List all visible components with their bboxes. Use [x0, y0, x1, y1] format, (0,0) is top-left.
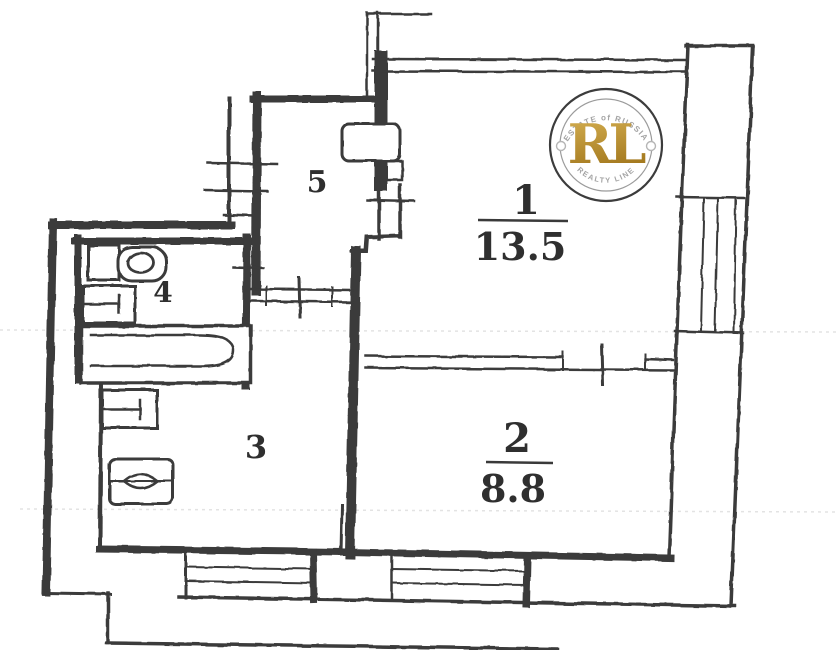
- room-2-number: 2: [503, 415, 531, 462]
- room-2-fraction-line: [486, 462, 553, 463]
- loggia-glazing-1: [701, 198, 704, 331]
- tick-kitchen-shaft: [367, 200, 414, 201]
- wall-room12-upper-right: [645, 359, 673, 360]
- window-left-glazing-2: [186, 581, 314, 583]
- door12-leaf-tick: [602, 345, 603, 385]
- room-1-label: 1 13.5: [474, 177, 568, 269]
- floor-plan-svg: 1 13.5 2 8.8 3 4 5 ESTATE of RUSSIA REAL…: [0, 0, 837, 650]
- wall-kitchen-left: [256, 96, 257, 291]
- room-2-label: 2 8.8: [480, 415, 553, 511]
- realty-logo: ESTATE of RUSSIA REALTY LINE RL: [550, 89, 662, 201]
- wall-left-exterior: [46, 222, 53, 592]
- wall-bottom-outer: [179, 597, 735, 606]
- room-2-area: 8.8: [480, 466, 546, 511]
- logo-initials: RL: [568, 112, 646, 176]
- wall-corridor-rooms: [350, 251, 356, 554]
- scan-streak-2: [20, 509, 837, 512]
- wall-room1-top-outer: [373, 59, 687, 60]
- loggia-glazing-2: [715, 198, 718, 331]
- floor-plan-page: 1 13.5 2 8.8 3 4 5 ESTATE of RUSSIA REAL…: [0, 0, 837, 650]
- kitchen-counter: [342, 124, 400, 161]
- room-1-area: 13.5: [474, 224, 567, 269]
- loggia-left-mid: [677, 195, 682, 332]
- room-1-fraction-line: [478, 220, 568, 221]
- bathroom-door-tick: [233, 267, 263, 268]
- window-left-glazing-1: [186, 567, 314, 569]
- wall-corridor-bottom: [99, 549, 342, 552]
- room-1-number: 1: [512, 177, 540, 224]
- entry-tick-3: [224, 215, 254, 216]
- entry-tick-1: [208, 163, 277, 164]
- window-right-glazing-2: [392, 583, 527, 585]
- loggia-window-top: [677, 197, 744, 198]
- wall-room1-top-inner: [373, 71, 687, 72]
- logo-dot-right: [647, 142, 656, 151]
- window-right-glazing-1: [392, 569, 527, 571]
- room-4-number: 4: [153, 276, 172, 309]
- wall-room12-lower: [366, 368, 673, 370]
- room-3-number: 3: [245, 428, 267, 466]
- entry-tick-2: [205, 190, 267, 191]
- toilet-cistern: [88, 245, 119, 280]
- wall-bottom-divider: [526, 557, 527, 604]
- loggia-glazing-3: [734, 198, 736, 332]
- loggia-window-bottom: [675, 331, 743, 333]
- room-5-number: 5: [307, 165, 328, 200]
- kitchen-door-leaf-tick: [299, 278, 300, 317]
- wall-room12-upper-left: [366, 356, 563, 357]
- window-left-pier: [313, 552, 314, 600]
- wall-room2-right: [669, 332, 677, 557]
- loggia-left-upper: [682, 45, 688, 195]
- step-horizontal: [46, 593, 110, 594]
- wall-corridor-extra-line: [341, 505, 342, 553]
- logo-dot-left: [557, 142, 566, 151]
- wall-bottom-edge: [107, 643, 557, 649]
